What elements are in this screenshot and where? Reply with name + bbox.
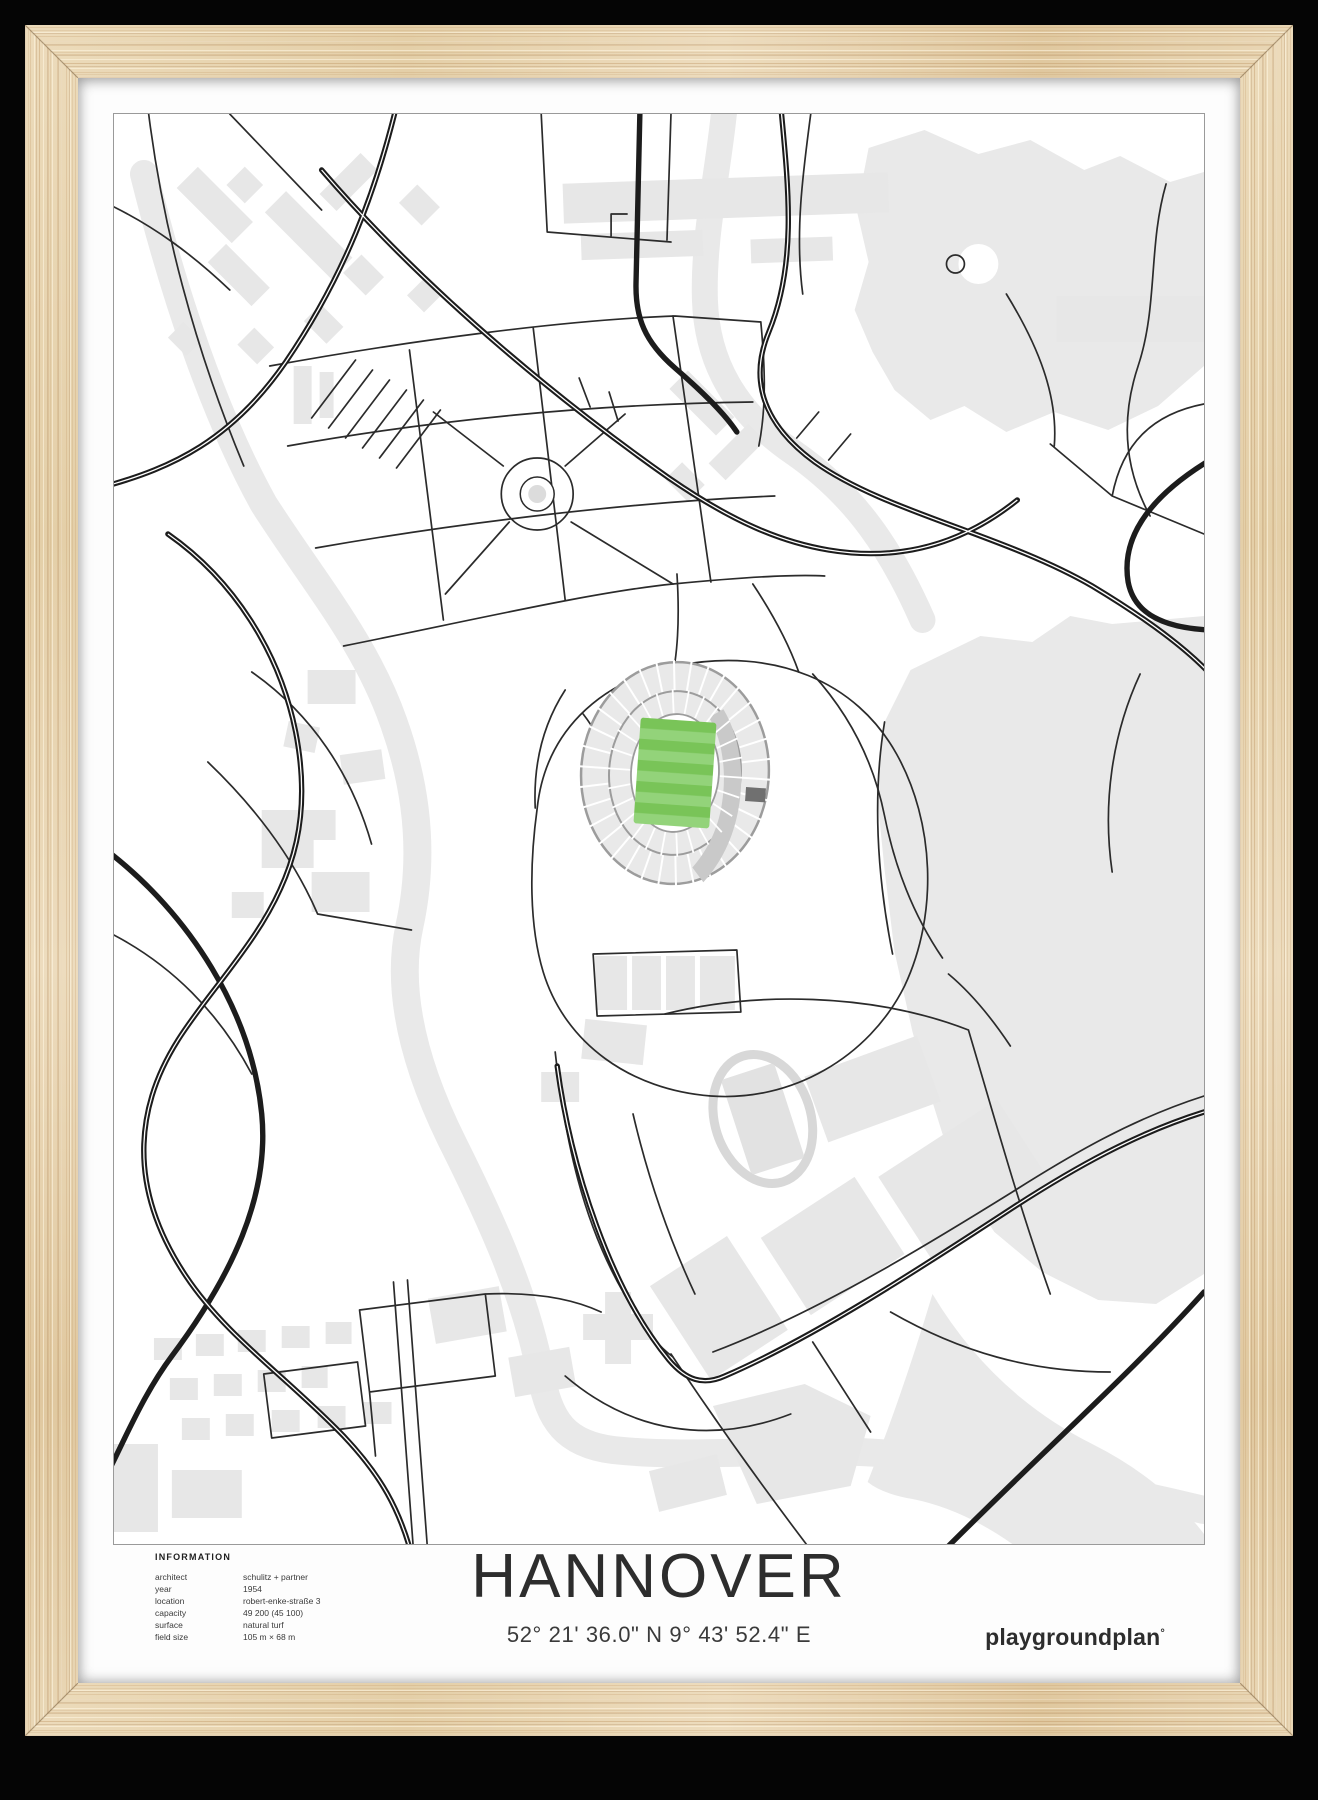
stadium-map-svg <box>114 114 1204 1544</box>
brand-mark: ° <box>1160 1627 1165 1639</box>
page-title: HANNOVER <box>78 1546 1240 1608</box>
stadium-pitch <box>633 717 716 828</box>
roundabout <box>501 458 573 530</box>
brand-name: playgroundplan <box>985 1624 1160 1650</box>
framed-poster-photo: INFORMATION architectschulitz + partner … <box>0 0 1318 1800</box>
brand-logo: playgroundplan° <box>985 1624 1165 1651</box>
poster: INFORMATION architectschulitz + partner … <box>78 78 1240 1683</box>
stadium-videowall <box>745 787 766 802</box>
running-track <box>697 1041 829 1196</box>
stadium <box>572 654 779 892</box>
frame-right <box>1240 25 1293 1736</box>
stadium-map <box>113 113 1205 1545</box>
frame-bottom <box>25 1683 1293 1736</box>
frame-left <box>25 25 78 1736</box>
frame-top <box>25 25 1293 78</box>
